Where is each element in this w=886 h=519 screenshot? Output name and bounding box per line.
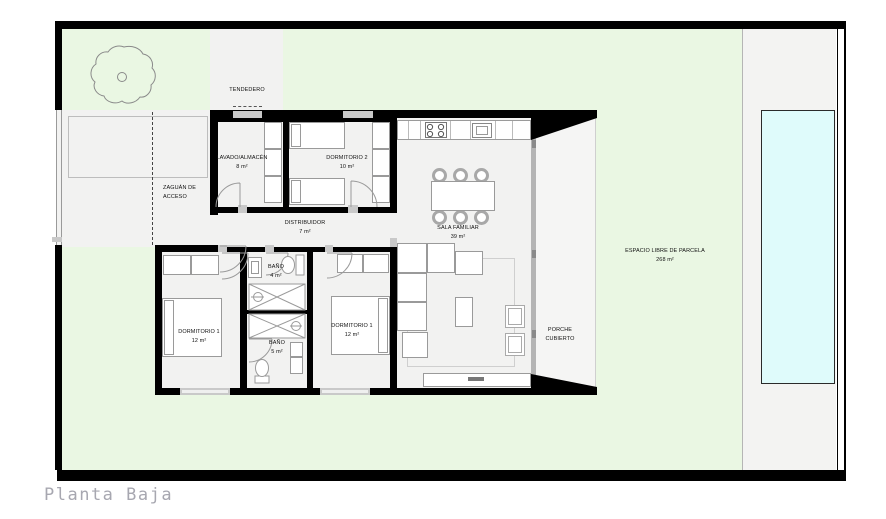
label-dormitorio2: DORMITORIO 210 m² (326, 154, 367, 171)
label-lavado: LAVADO/ALMACÉN8 m² (216, 154, 267, 171)
porch-floor (536, 115, 596, 393)
gate-line-inner (61, 110, 62, 245)
stove (425, 122, 447, 138)
window-dorm1-left (180, 388, 230, 395)
bathroom-sink-basin (251, 261, 259, 274)
pillow (378, 298, 388, 353)
sofa-ottoman (402, 332, 428, 358)
closet-cell (372, 122, 390, 149)
label-zaguan: ZAGUÁN DEACCESO (163, 184, 196, 201)
tendedero-door-threshold (233, 111, 262, 118)
closet-cell (372, 149, 390, 176)
roof-overhang-dashed-line (152, 112, 153, 245)
wardrobe-cell (363, 254, 389, 273)
closet-cell (264, 122, 282, 149)
kitchen-counter (397, 120, 531, 140)
door-threshold-dorm1-right (325, 245, 333, 252)
sofa-module (397, 243, 427, 273)
wardrobe-cell (337, 254, 363, 273)
glass-wall-tick-2 (532, 250, 536, 258)
counter-divider (470, 121, 471, 139)
bathroom-sink-cabinet (290, 357, 303, 374)
dining-chair (453, 210, 468, 225)
sofa-module (397, 273, 427, 302)
boundary-wall-bottom (57, 470, 846, 481)
sofa-chaise (455, 251, 483, 275)
bathroom-sink-cabinet (290, 342, 303, 357)
floor-plan-canvas: TENDEDERO LAVADO/ALMACÉN8 m² DORMITORIO … (0, 0, 886, 519)
counter-divider (450, 121, 451, 139)
counter-divider (512, 121, 513, 139)
door-threshold-lavado (238, 205, 247, 213)
closet-cell (264, 176, 282, 203)
house-wall-top-porch (536, 110, 597, 118)
boundary-wall-left-lower (55, 245, 62, 470)
dining-table (431, 181, 495, 211)
label-bano2: BAÑO5 m² (269, 339, 285, 356)
closet-cell (372, 176, 390, 203)
dining-chair (474, 210, 489, 225)
pillow (291, 124, 301, 147)
armchair-seat (508, 336, 522, 353)
armchair-seat (508, 308, 522, 325)
pillow (164, 300, 174, 355)
boundary-wall-left-upper (55, 21, 62, 110)
door-threshold-dorm1-left (218, 245, 227, 252)
pillow (291, 180, 301, 203)
window-dormitorio2 (343, 111, 373, 118)
label-distribuidor: DISTRIBUIDOR7 m² (285, 219, 326, 236)
carport-outline (68, 116, 208, 178)
label-bano1: BAÑO4 m² (268, 263, 284, 280)
boundary-line-right-inner (837, 29, 838, 470)
label-parcela: ESPACIO LIBRE DE PARCELA268 m² (625, 247, 705, 264)
counter-divider (408, 121, 409, 139)
wardrobe-cell (163, 255, 191, 275)
swimming-pool (761, 110, 835, 384)
label-sala-familiar: SALA FAMILIAR39 m² (437, 224, 479, 241)
dining-chair (432, 210, 447, 225)
boundary-line-right-outer (844, 21, 846, 481)
gate-line-outer (56, 110, 57, 245)
door-threshold-bano1 (265, 245, 274, 252)
label-dormitorio1-left: DORMITORIO 112 m² (178, 328, 219, 345)
page-title: Planta Baja (44, 485, 173, 505)
tendedero-door-dashed (233, 106, 262, 107)
gate-tick (52, 237, 62, 242)
sofa-module (397, 302, 427, 331)
tv-set (468, 377, 484, 381)
door-threshold-dorm2 (348, 205, 358, 213)
sala-opening-tick (390, 238, 397, 247)
boundary-wall-top (55, 21, 846, 29)
counter-divider (495, 121, 496, 139)
label-dormitorio1-right: DORMITORIO 112 m² (331, 322, 372, 339)
entry-doorway-gap (206, 215, 220, 245)
counter-divider (420, 121, 421, 139)
window-dorm1-right (320, 388, 370, 395)
wardrobe-cell (191, 255, 219, 275)
label-tendedero: TENDEDERO (229, 86, 264, 95)
kitchen-sink-basin (476, 126, 488, 135)
label-porche: PORCHECUBIERTO (545, 326, 574, 343)
coffee-table (455, 297, 473, 327)
glass-wall-tick-1 (532, 140, 536, 148)
glass-wall-tick-3 (532, 330, 536, 338)
tendedero-strip (210, 29, 283, 110)
sofa-module (427, 243, 455, 273)
